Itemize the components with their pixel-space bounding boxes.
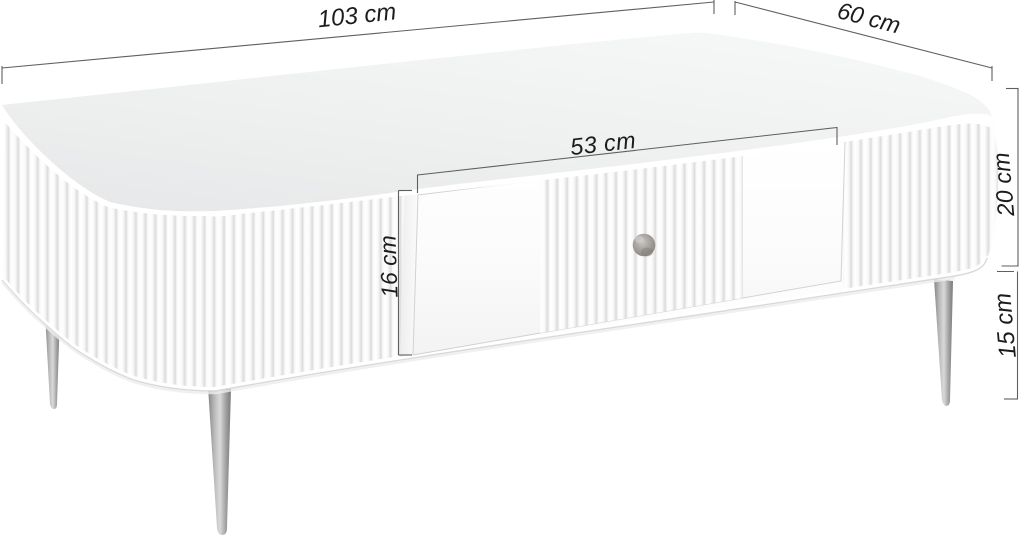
svg-text:16 cm: 16 cm xyxy=(374,235,402,299)
svg-text:15 cm: 15 cm xyxy=(989,292,1020,359)
